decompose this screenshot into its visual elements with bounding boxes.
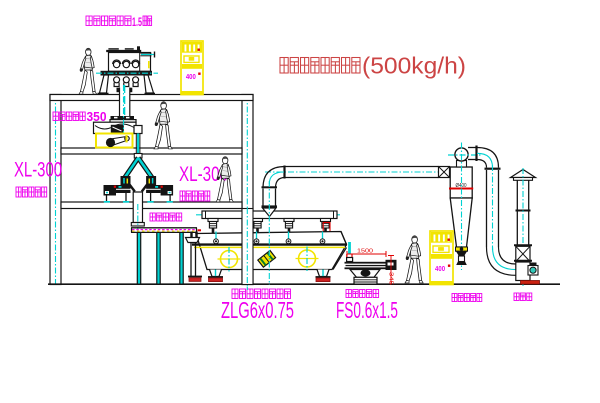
svg-text:1500: 1500	[357, 249, 373, 255]
svg-text:400: 400	[186, 74, 196, 81]
svg-text:XL-300: XL-300	[14, 159, 62, 182]
svg-text:ZLG6x0.75: ZLG6x0.75	[221, 297, 294, 323]
svg-text:(500kg/h): (500kg/h)	[362, 53, 466, 79]
svg-text:345: 345	[388, 272, 394, 285]
svg-text:FS0.6x1.5: FS0.6x1.5	[336, 297, 398, 323]
svg-text:1.5: 1.5	[132, 15, 142, 29]
svg-text:400: 400	[435, 266, 445, 273]
